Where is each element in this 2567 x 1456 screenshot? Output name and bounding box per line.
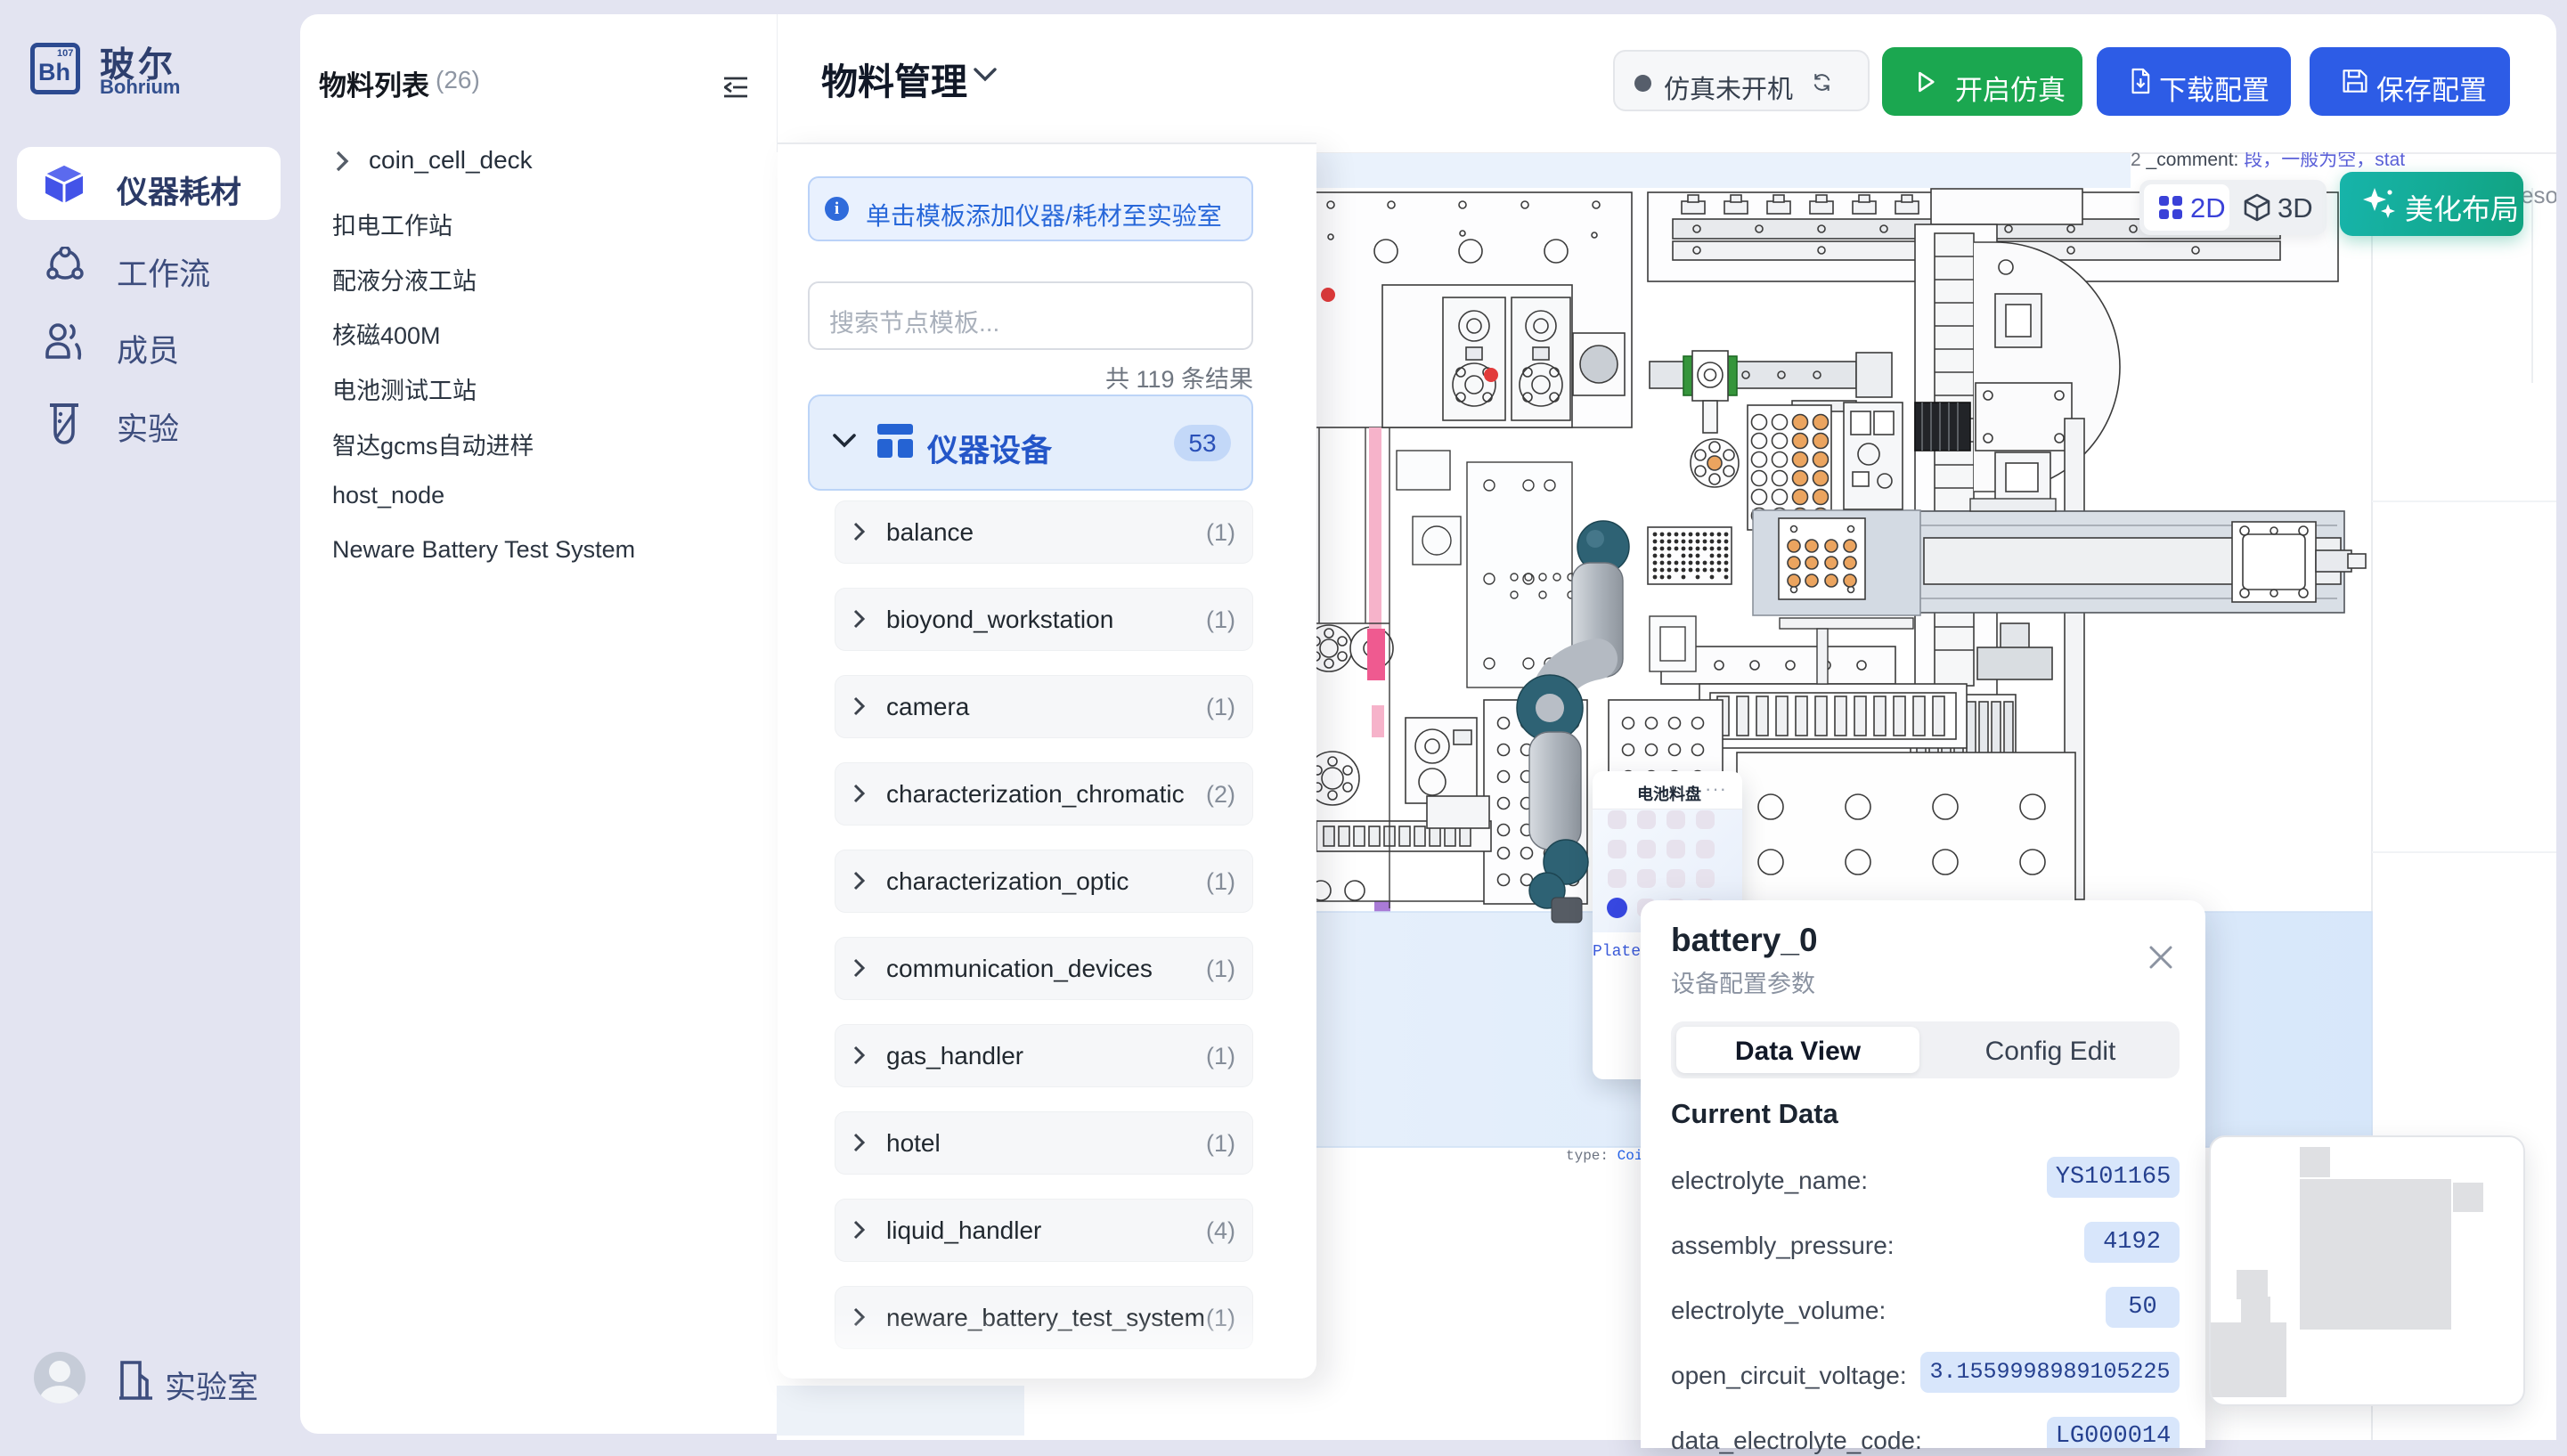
svg-text:esou: esou: [2521, 182, 2556, 208]
svg-text:2 _comment: 段，一般为空，stat: 2 _comment: 段，一般为空，stat: [2131, 152, 2405, 170]
